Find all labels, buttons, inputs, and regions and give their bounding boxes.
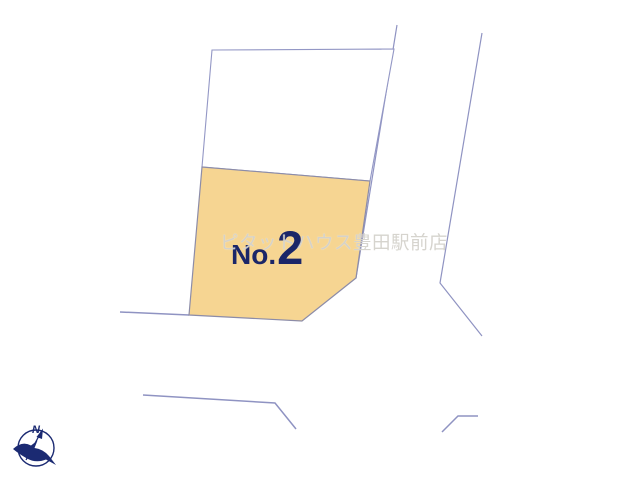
agency-watermark: ピタットハウス豊田駅前店 [220, 229, 448, 255]
parcel-adjacent [202, 49, 394, 181]
compass-north-label: N [32, 424, 41, 436]
compass-bird-silhouette [13, 441, 56, 466]
road-line-bottom-middle [143, 395, 296, 429]
north-arrow-icon: N [13, 424, 56, 466]
road-line-bottom-right [442, 416, 478, 432]
road-line-right [440, 33, 482, 336]
road-line-left-stub [120, 312, 189, 315]
plot-map-canvas: N No. 2 ピタットハウス豊田駅前店 [0, 0, 640, 480]
